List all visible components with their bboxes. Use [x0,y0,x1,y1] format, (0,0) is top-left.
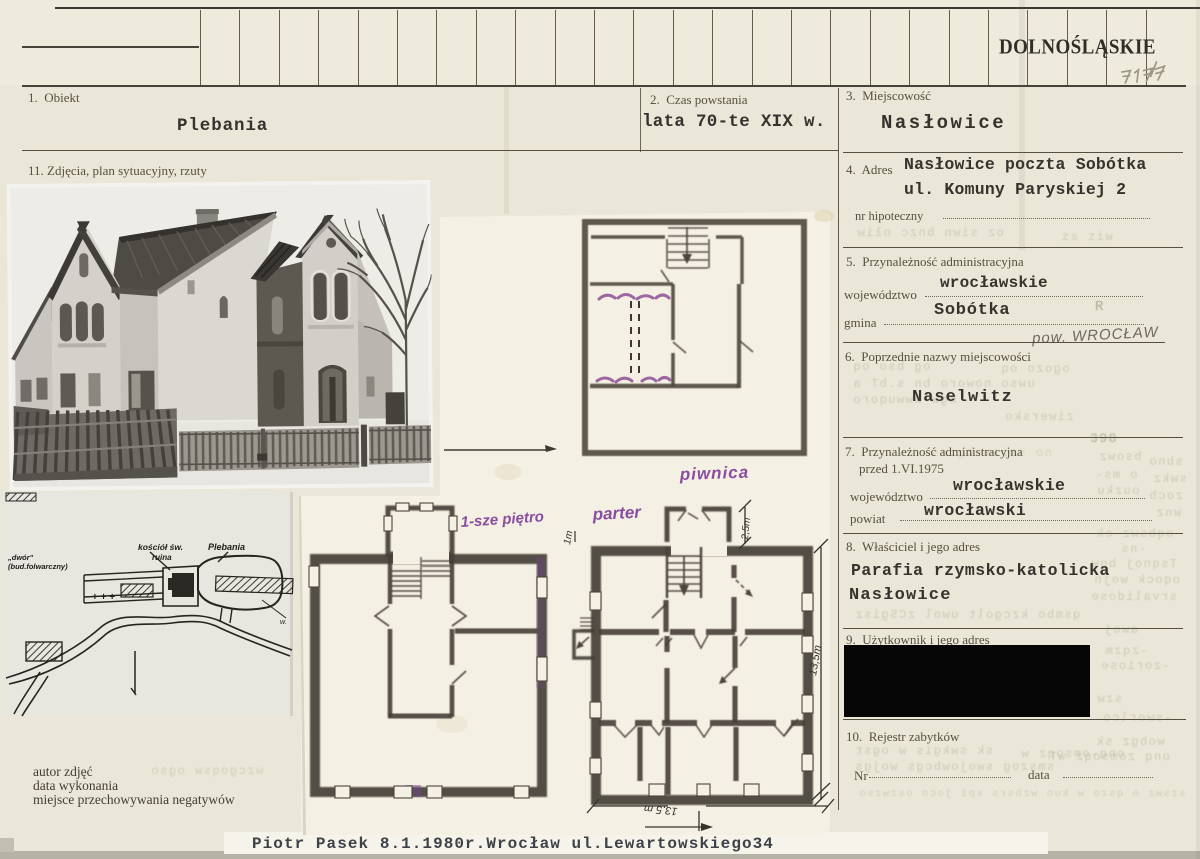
svg-text:1m: 1m [562,530,575,546]
svg-text:„dwór": „dwór" [7,553,34,562]
svg-text:(bud.folwarczny): (bud.folwarczny) [8,562,68,571]
svg-text:ruina: ruina [152,553,172,562]
svg-text:Plebania: Plebania [208,542,245,552]
svg-text:parter: parter [591,502,642,524]
svg-text:+ + +: + + + [92,592,115,603]
svg-text:piwnica: piwnica [678,463,749,484]
svg-text:2,5m: 2,5m [740,517,753,541]
svg-text:w.: w. [280,619,287,626]
svg-text:kościół św.: kościół św. [138,542,183,552]
svg-text:1-sze piętro: 1-sze piętro [460,508,544,531]
